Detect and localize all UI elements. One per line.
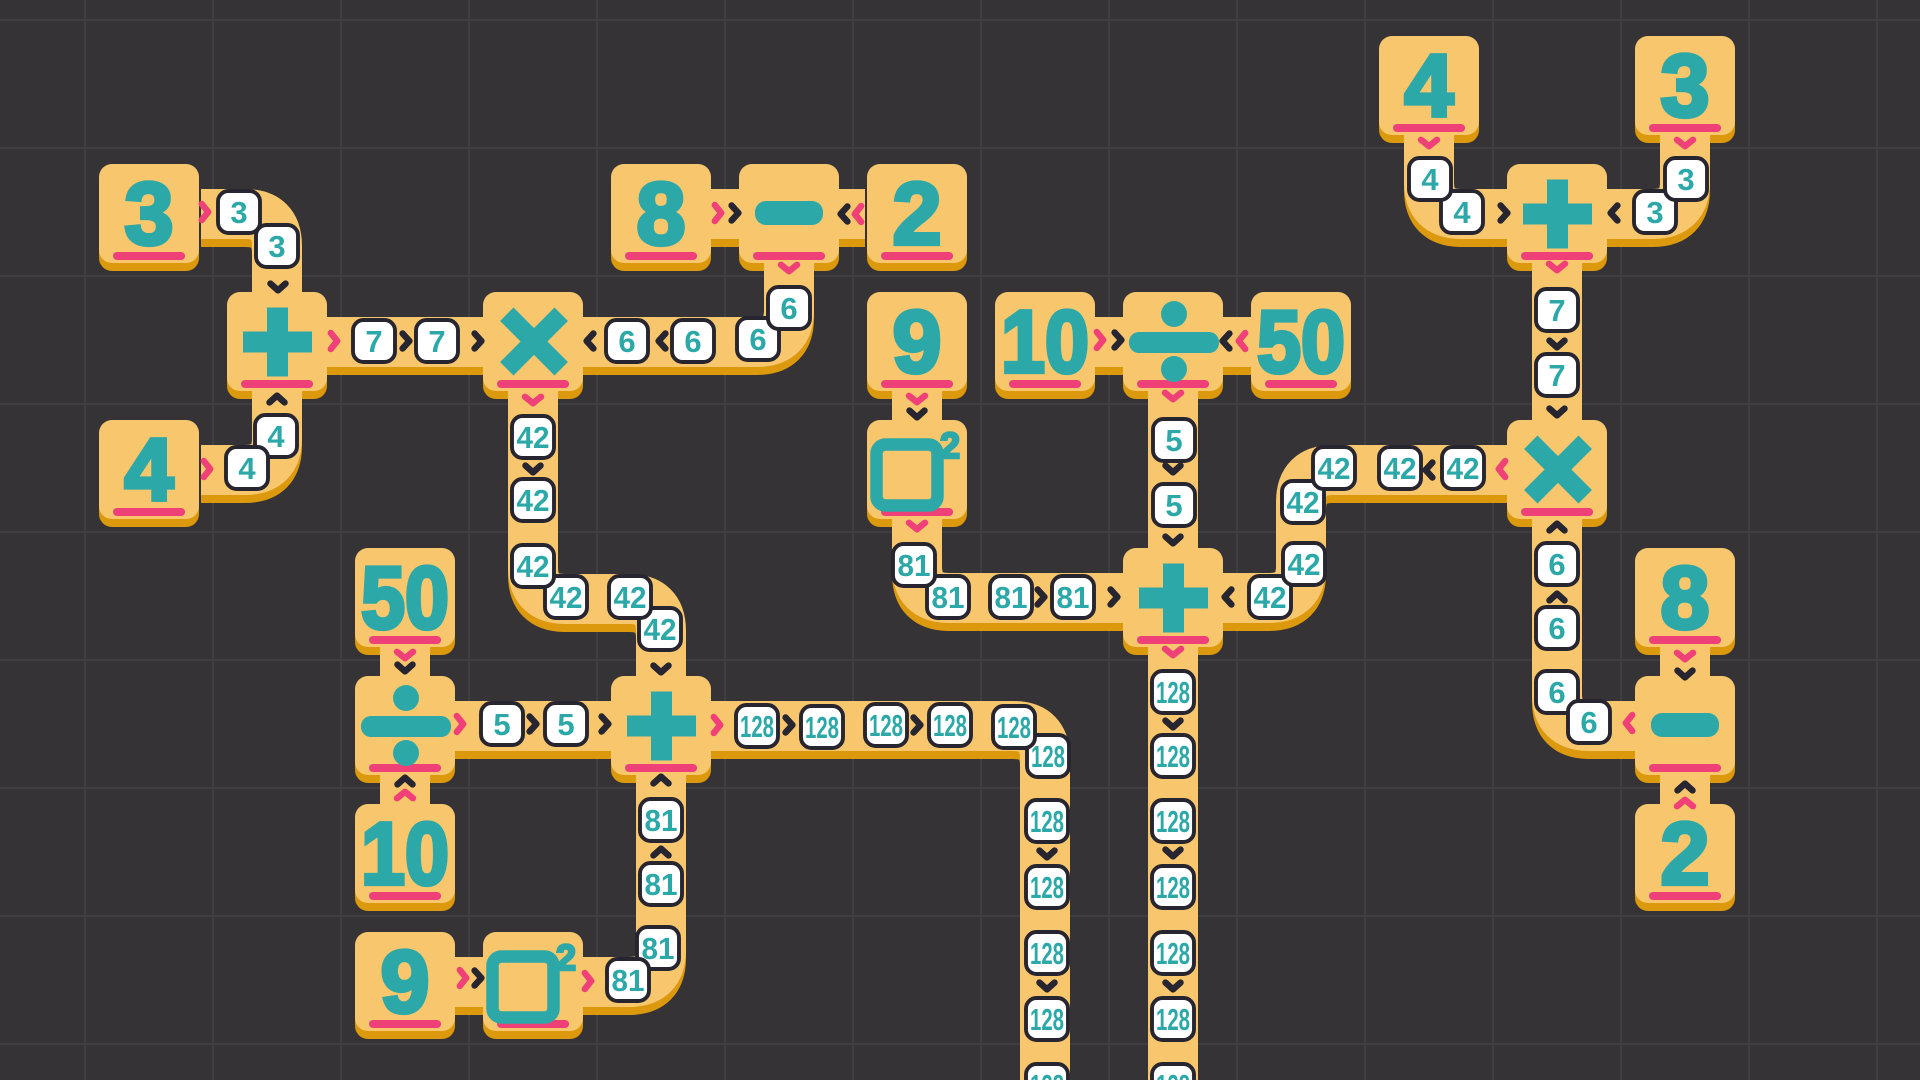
svg-text:7: 7: [1548, 293, 1565, 328]
svg-text:128: 128: [1031, 739, 1065, 774]
svg-text:81: 81: [612, 963, 645, 998]
svg-text:128: 128: [869, 708, 903, 743]
svg-text:3: 3: [268, 229, 285, 264]
svg-text:2: 2: [940, 425, 960, 466]
svg-text:81: 81: [645, 803, 678, 838]
svg-text:9: 9: [893, 292, 942, 391]
svg-text:81: 81: [995, 580, 1028, 615]
svg-text:6: 6: [1580, 705, 1597, 740]
svg-text:81: 81: [898, 548, 931, 583]
svg-text:128: 128: [1156, 1068, 1190, 1080]
svg-text:4: 4: [1421, 162, 1439, 197]
svg-text:42: 42: [644, 612, 677, 647]
svg-text:3: 3: [1661, 36, 1710, 135]
svg-text:8: 8: [637, 164, 686, 263]
svg-text:50: 50: [361, 548, 449, 647]
svg-text:9: 9: [381, 932, 430, 1031]
svg-text:5: 5: [493, 707, 510, 742]
svg-text:6: 6: [749, 322, 766, 357]
svg-text:8: 8: [1661, 548, 1710, 647]
svg-text:2: 2: [893, 164, 942, 263]
svg-text:5: 5: [1165, 488, 1182, 523]
svg-text:6: 6: [1548, 611, 1565, 646]
svg-text:6: 6: [684, 324, 701, 359]
svg-text:50: 50: [1257, 292, 1345, 391]
svg-text:3: 3: [125, 164, 174, 263]
svg-text:4: 4: [1453, 195, 1471, 230]
svg-text:42: 42: [1384, 451, 1417, 486]
svg-text:10: 10: [1001, 292, 1089, 391]
svg-text:7: 7: [428, 324, 445, 359]
svg-text:128: 128: [1156, 936, 1190, 971]
svg-text:42: 42: [1288, 547, 1321, 582]
svg-text:128: 128: [1030, 870, 1064, 905]
svg-text:3: 3: [1646, 195, 1663, 230]
svg-text:128: 128: [1030, 1068, 1064, 1080]
svg-text:42: 42: [614, 580, 647, 615]
svg-text:4: 4: [1405, 36, 1454, 135]
svg-text:6: 6: [618, 324, 635, 359]
svg-text:42: 42: [1318, 451, 1351, 486]
svg-text:4: 4: [267, 419, 285, 454]
svg-text:5: 5: [1165, 423, 1182, 458]
svg-text:3: 3: [230, 195, 247, 230]
svg-text:128: 128: [1156, 675, 1190, 710]
svg-text:10: 10: [361, 804, 449, 903]
svg-text:42: 42: [517, 549, 550, 584]
svg-text:3: 3: [1677, 162, 1694, 197]
svg-text:42: 42: [517, 420, 550, 455]
svg-text:4: 4: [125, 420, 174, 519]
svg-text:128: 128: [933, 708, 967, 743]
svg-text:128: 128: [1156, 870, 1190, 905]
svg-text:81: 81: [1057, 580, 1090, 615]
svg-text:5: 5: [557, 707, 574, 742]
svg-text:7: 7: [365, 324, 382, 359]
svg-text:2: 2: [1661, 804, 1710, 903]
svg-text:128: 128: [1156, 739, 1190, 774]
svg-text:128: 128: [740, 709, 774, 744]
svg-text:4: 4: [238, 451, 256, 486]
svg-text:128: 128: [1156, 1002, 1190, 1037]
svg-text:128: 128: [997, 710, 1031, 745]
svg-text:81: 81: [932, 580, 965, 615]
svg-text:81: 81: [645, 867, 678, 902]
svg-text:2: 2: [556, 937, 576, 978]
svg-text:128: 128: [1030, 804, 1064, 839]
svg-text:6: 6: [780, 291, 797, 326]
svg-text:128: 128: [1030, 936, 1064, 971]
svg-text:42: 42: [550, 580, 583, 615]
svg-text:7: 7: [1548, 358, 1565, 393]
svg-text:42: 42: [517, 483, 550, 518]
svg-text:42: 42: [1254, 580, 1287, 615]
svg-text:128: 128: [1156, 804, 1190, 839]
svg-text:128: 128: [1030, 1002, 1064, 1037]
svg-text:42: 42: [1447, 451, 1480, 486]
svg-text:42: 42: [1287, 485, 1320, 520]
svg-text:128: 128: [805, 710, 839, 745]
svg-text:6: 6: [1548, 547, 1565, 582]
svg-text:6: 6: [1548, 675, 1565, 710]
